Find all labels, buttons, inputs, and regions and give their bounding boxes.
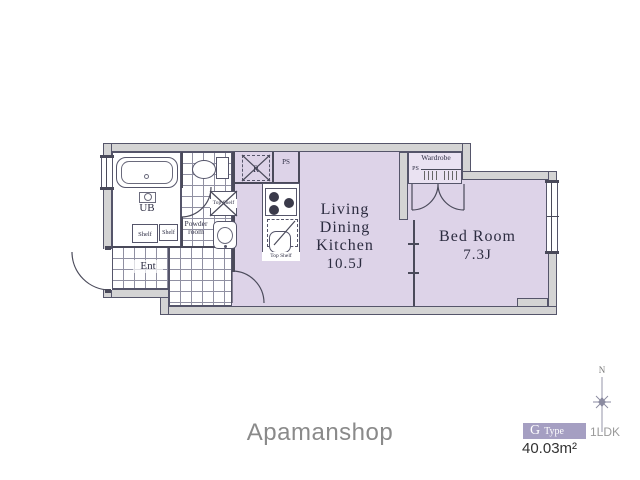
door-jamb xyxy=(105,246,111,250)
room-size-bedroom: 7.3J xyxy=(463,247,492,263)
wardrobe-hangers xyxy=(424,171,437,180)
refrigerator-label: R xyxy=(252,164,260,174)
brand-logo: Apamanshop xyxy=(230,418,410,448)
shelf-left: Shelf xyxy=(132,224,158,243)
unit-type-word: Type xyxy=(544,426,564,437)
toilet-tank xyxy=(216,157,229,179)
room-label-bedroom: Bed Room 7.3J xyxy=(425,228,530,266)
unit-layout: 1LDK xyxy=(590,425,630,439)
wall-wardrobe-side xyxy=(399,152,408,220)
compass-diamond xyxy=(598,397,606,407)
compass-star xyxy=(593,377,611,432)
sink xyxy=(269,231,291,253)
wall-top-right xyxy=(462,171,557,180)
partition-tick xyxy=(408,272,419,274)
bath-vanity-bowl xyxy=(144,193,152,201)
room-label-ldk: Living Dining Kitchen 10.5J xyxy=(298,201,392,277)
floorplan-canvas: UB Shelf Shelf Top Shelf Powder room Ent… xyxy=(0,0,640,480)
partition-tick xyxy=(408,243,419,245)
room-size-ldk: 10.5J xyxy=(326,256,363,272)
laundry-top-shelf-label: Top Shelf xyxy=(210,199,237,208)
room-label-unit-bath: UB xyxy=(132,202,162,214)
wardrobe-rod xyxy=(421,169,461,170)
window-cap xyxy=(100,155,114,158)
wardrobe: Wardrobe PS xyxy=(408,152,462,184)
bathtub xyxy=(116,157,178,188)
toilet-bowl xyxy=(192,160,216,179)
wardrobe-label: Wardrobe xyxy=(409,154,463,164)
entrance-door-opening xyxy=(103,249,112,290)
door-jamb xyxy=(105,289,111,293)
shelf-right: Shelf xyxy=(159,224,178,241)
stove xyxy=(265,188,297,216)
compass-north-label: N xyxy=(596,366,608,376)
refrigerator-space: R xyxy=(242,155,270,181)
bath-window xyxy=(101,157,113,188)
unit-type-letter: G xyxy=(530,423,540,439)
wall-ub-powder-upper xyxy=(181,152,183,188)
wall-bottom-left xyxy=(103,289,169,298)
wardrobe-hangers xyxy=(444,171,457,180)
partition-ldk-bedroom xyxy=(413,220,415,306)
window-cap xyxy=(545,180,559,183)
bedroom-window xyxy=(546,182,558,253)
wall-top-left xyxy=(103,143,471,152)
floor-hall xyxy=(169,247,232,306)
room-label-powder: Powder room xyxy=(178,220,214,240)
unit-area: 40.03m² xyxy=(522,440,602,458)
wall-ps-right xyxy=(298,152,300,183)
wall-corner-pillar xyxy=(517,298,548,307)
wardrobe-ps-label: PS xyxy=(410,166,421,174)
wall-bottom xyxy=(160,306,557,315)
room-label-entrance: Ent xyxy=(133,260,163,273)
window-cap xyxy=(545,251,559,254)
pipe-space-label: PS xyxy=(274,159,298,169)
washbasin xyxy=(213,221,237,249)
kitchen-top-shelf-label: Top Shelf xyxy=(262,252,300,261)
window-cap xyxy=(100,187,114,190)
unit-type-badge: G Type xyxy=(523,423,586,439)
